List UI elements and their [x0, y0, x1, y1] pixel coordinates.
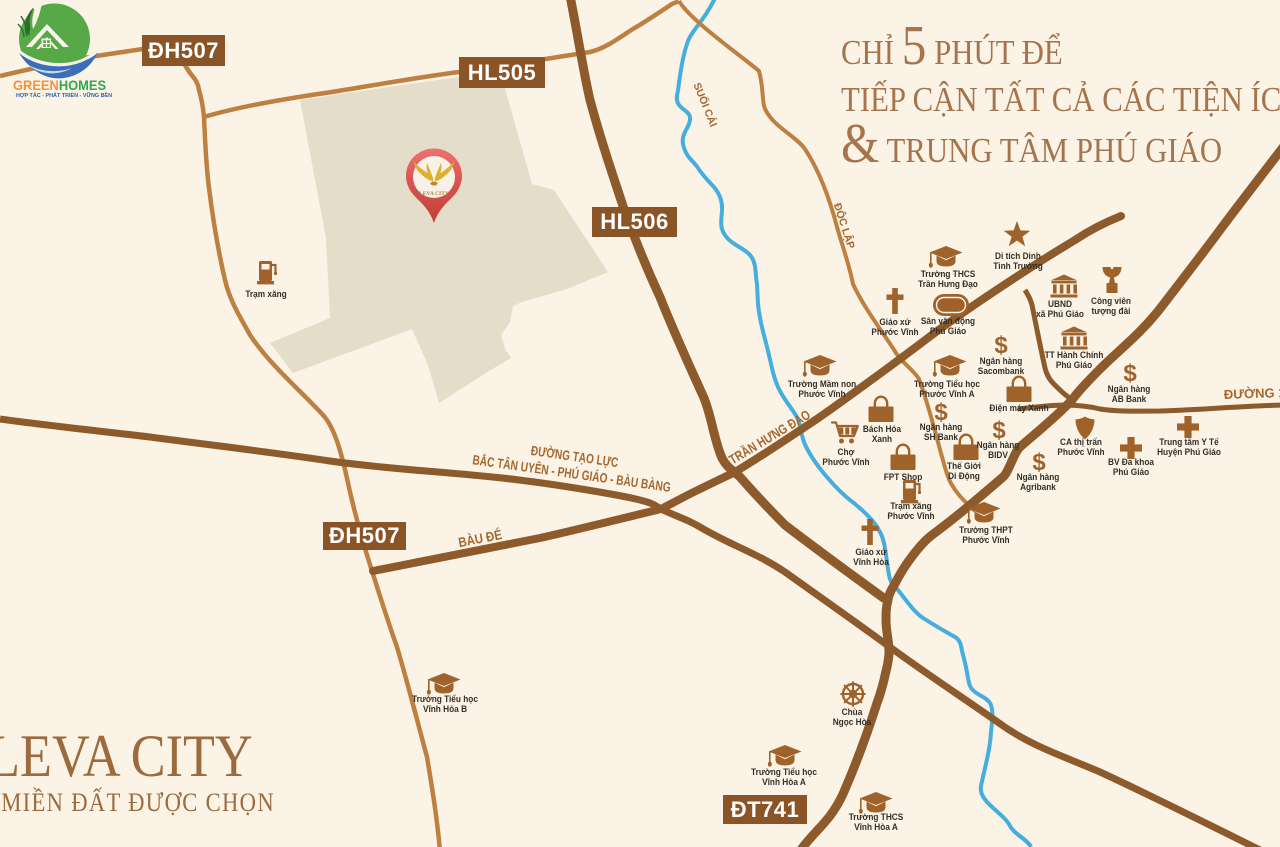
svg-text:$: $ — [1123, 360, 1137, 387]
svg-text:LEVA CITY: LEVA CITY — [419, 191, 449, 197]
svg-text:SUỐI CÁI: SUỐI CÁI — [690, 80, 720, 129]
svg-text:ĐƯỜNG 19 TH: ĐƯỜNG 19 TH — [1224, 384, 1280, 402]
svg-text:TRẦN HƯNG ĐẠO: TRẦN HƯNG ĐẠO — [726, 407, 813, 467]
svg-text:$: $ — [994, 332, 1008, 359]
